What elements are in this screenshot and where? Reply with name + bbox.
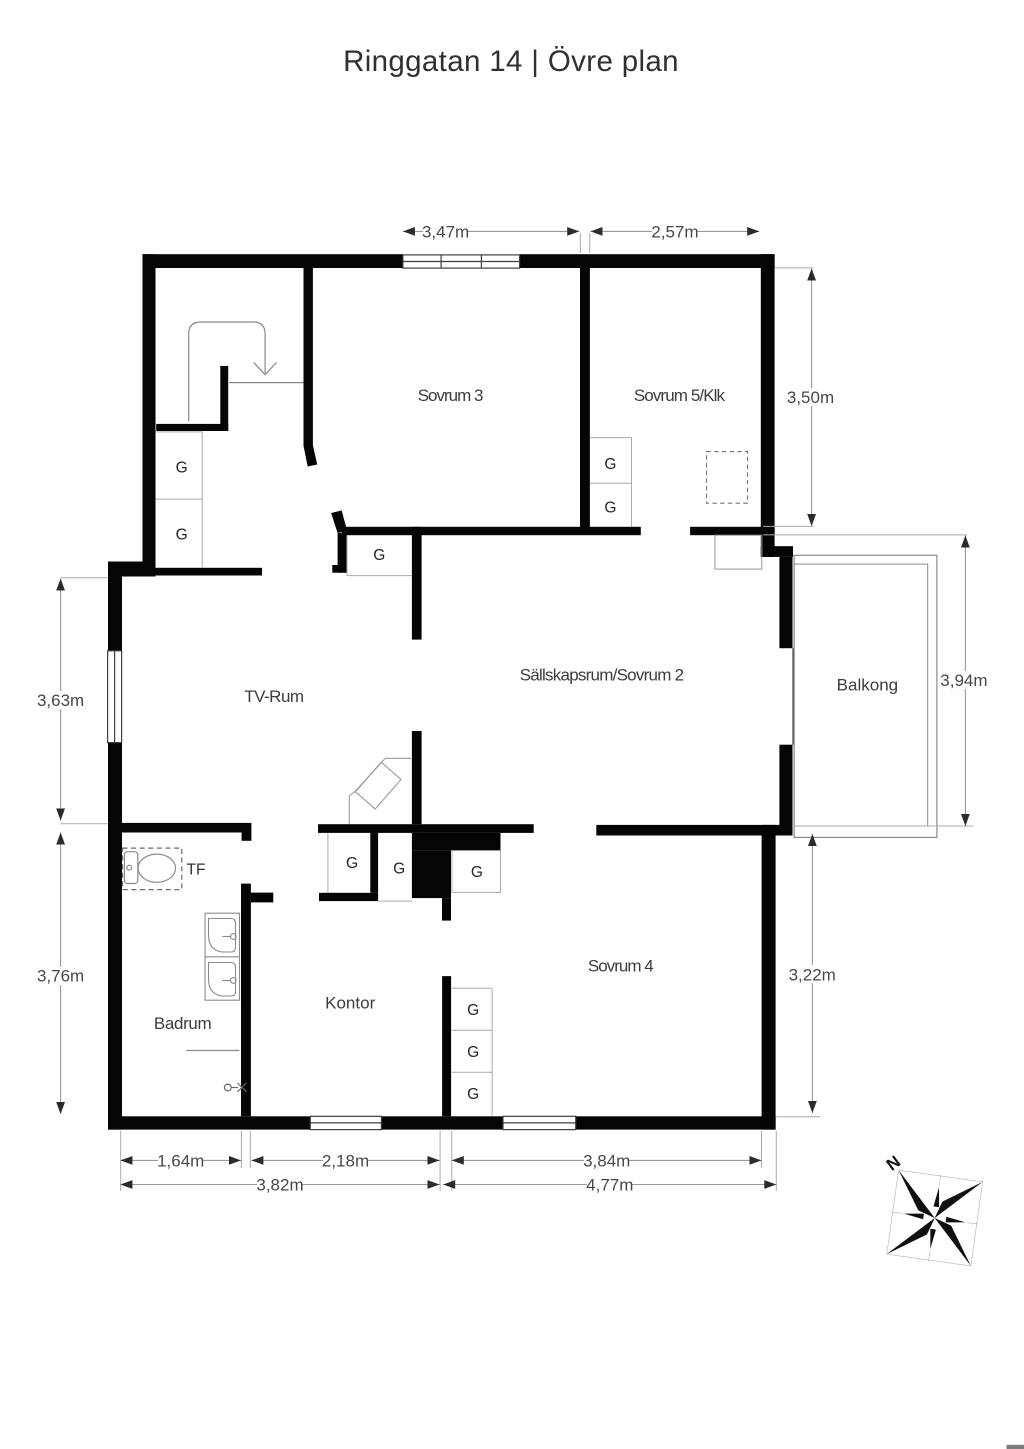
svg-text:Sovrum 5/Klk: Sovrum 5/Klk: [634, 386, 726, 405]
svg-text:G: G: [346, 855, 358, 872]
svg-text:3,50m: 3,50m: [787, 388, 834, 407]
svg-text:G: G: [373, 547, 385, 564]
svg-text:Kontor: Kontor: [325, 994, 375, 1013]
svg-text:Sovrum 4: Sovrum 4: [588, 956, 653, 975]
svg-text:3,94m: 3,94m: [940, 671, 987, 690]
svg-text:3,84m: 3,84m: [583, 1151, 630, 1170]
svg-text:2,18m: 2,18m: [322, 1151, 369, 1170]
svg-text:3,63m: 3,63m: [37, 691, 84, 710]
svg-text:3,76m: 3,76m: [37, 967, 84, 986]
svg-text:2,57m: 2,57m: [651, 222, 698, 241]
svg-text:G: G: [467, 1002, 479, 1019]
svg-text:4,77m: 4,77m: [586, 1175, 633, 1194]
svg-text:G: G: [471, 864, 483, 881]
svg-text:G: G: [467, 1044, 479, 1061]
svg-text:G: G: [604, 456, 616, 473]
svg-text:Sällskapsrum/Sovrum 2: Sällskapsrum/Sovrum 2: [520, 666, 684, 685]
svg-text:Ringgatan 14 | Övre plan: Ringgatan 14 | Övre plan: [343, 45, 679, 78]
svg-text:G: G: [176, 527, 188, 544]
svg-text:1,64m: 1,64m: [157, 1151, 204, 1170]
svg-text:Balkong: Balkong: [837, 676, 898, 695]
svg-text:Sovrum 3: Sovrum 3: [418, 386, 483, 405]
svg-text:3,47m: 3,47m: [422, 222, 469, 241]
svg-text:Badrum: Badrum: [154, 1014, 212, 1033]
svg-text:TF: TF: [187, 861, 206, 878]
svg-text:TV-Rum: TV-Rum: [244, 687, 304, 706]
svg-text:G: G: [176, 459, 188, 476]
svg-text:3,22m: 3,22m: [789, 965, 836, 984]
svg-text:G: G: [467, 1086, 479, 1103]
svg-text:G: G: [393, 861, 405, 878]
svg-text:G: G: [604, 499, 616, 516]
svg-text:3,82m: 3,82m: [256, 1175, 303, 1194]
